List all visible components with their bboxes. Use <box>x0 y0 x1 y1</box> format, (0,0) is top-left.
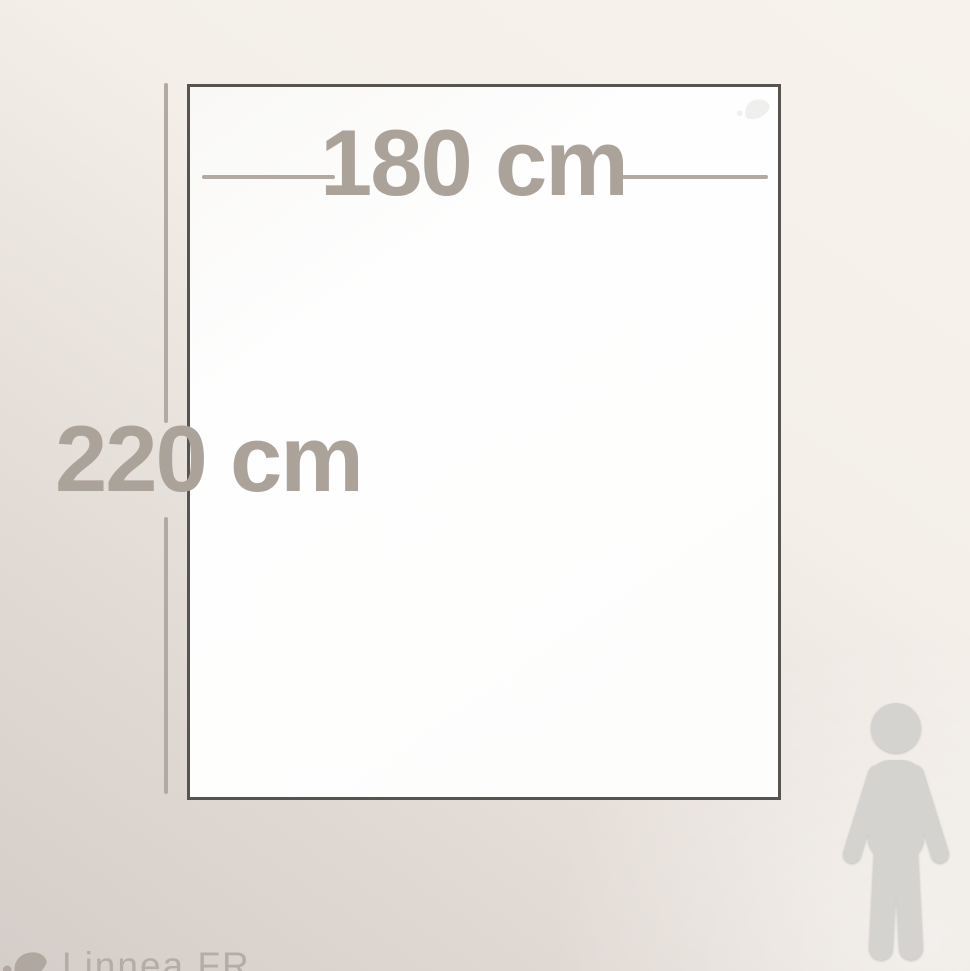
width-dimension-line-left <box>202 175 335 179</box>
person-silhouette-icon <box>826 702 966 964</box>
brand-watermark-text: Linnea.FR <box>62 945 251 971</box>
leaf-icon-faint <box>736 94 772 124</box>
height-dimension-line-lower <box>164 517 168 794</box>
width-dimension-line-right <box>622 175 768 179</box>
height-dimension-label: 220 cm <box>55 412 362 506</box>
leaf-icon <box>2 949 52 971</box>
height-dimension-line-upper <box>164 83 168 423</box>
product-dimension-diagram: 180 cm 220 cm Linnea.FR <box>0 0 970 971</box>
brand-watermark: Linnea.FR <box>2 945 251 971</box>
width-dimension-label: 180 cm <box>320 116 627 210</box>
